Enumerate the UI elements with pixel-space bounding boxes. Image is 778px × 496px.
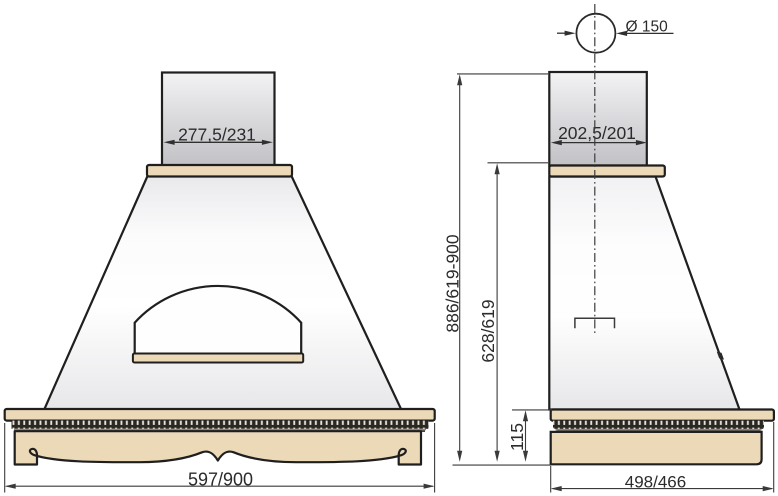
- svg-text:Ø 150: Ø 150: [626, 19, 669, 36]
- svg-text:115: 115: [507, 423, 527, 451]
- svg-text:886/619-900: 886/619-900: [442, 234, 462, 333]
- svg-text:628/619: 628/619: [478, 299, 498, 362]
- svg-text:277,5/231: 277,5/231: [178, 125, 256, 145]
- svg-text:202,5/201: 202,5/201: [558, 123, 636, 143]
- svg-text:498/466: 498/466: [625, 473, 686, 492]
- svg-text:597/900: 597/900: [188, 470, 253, 490]
